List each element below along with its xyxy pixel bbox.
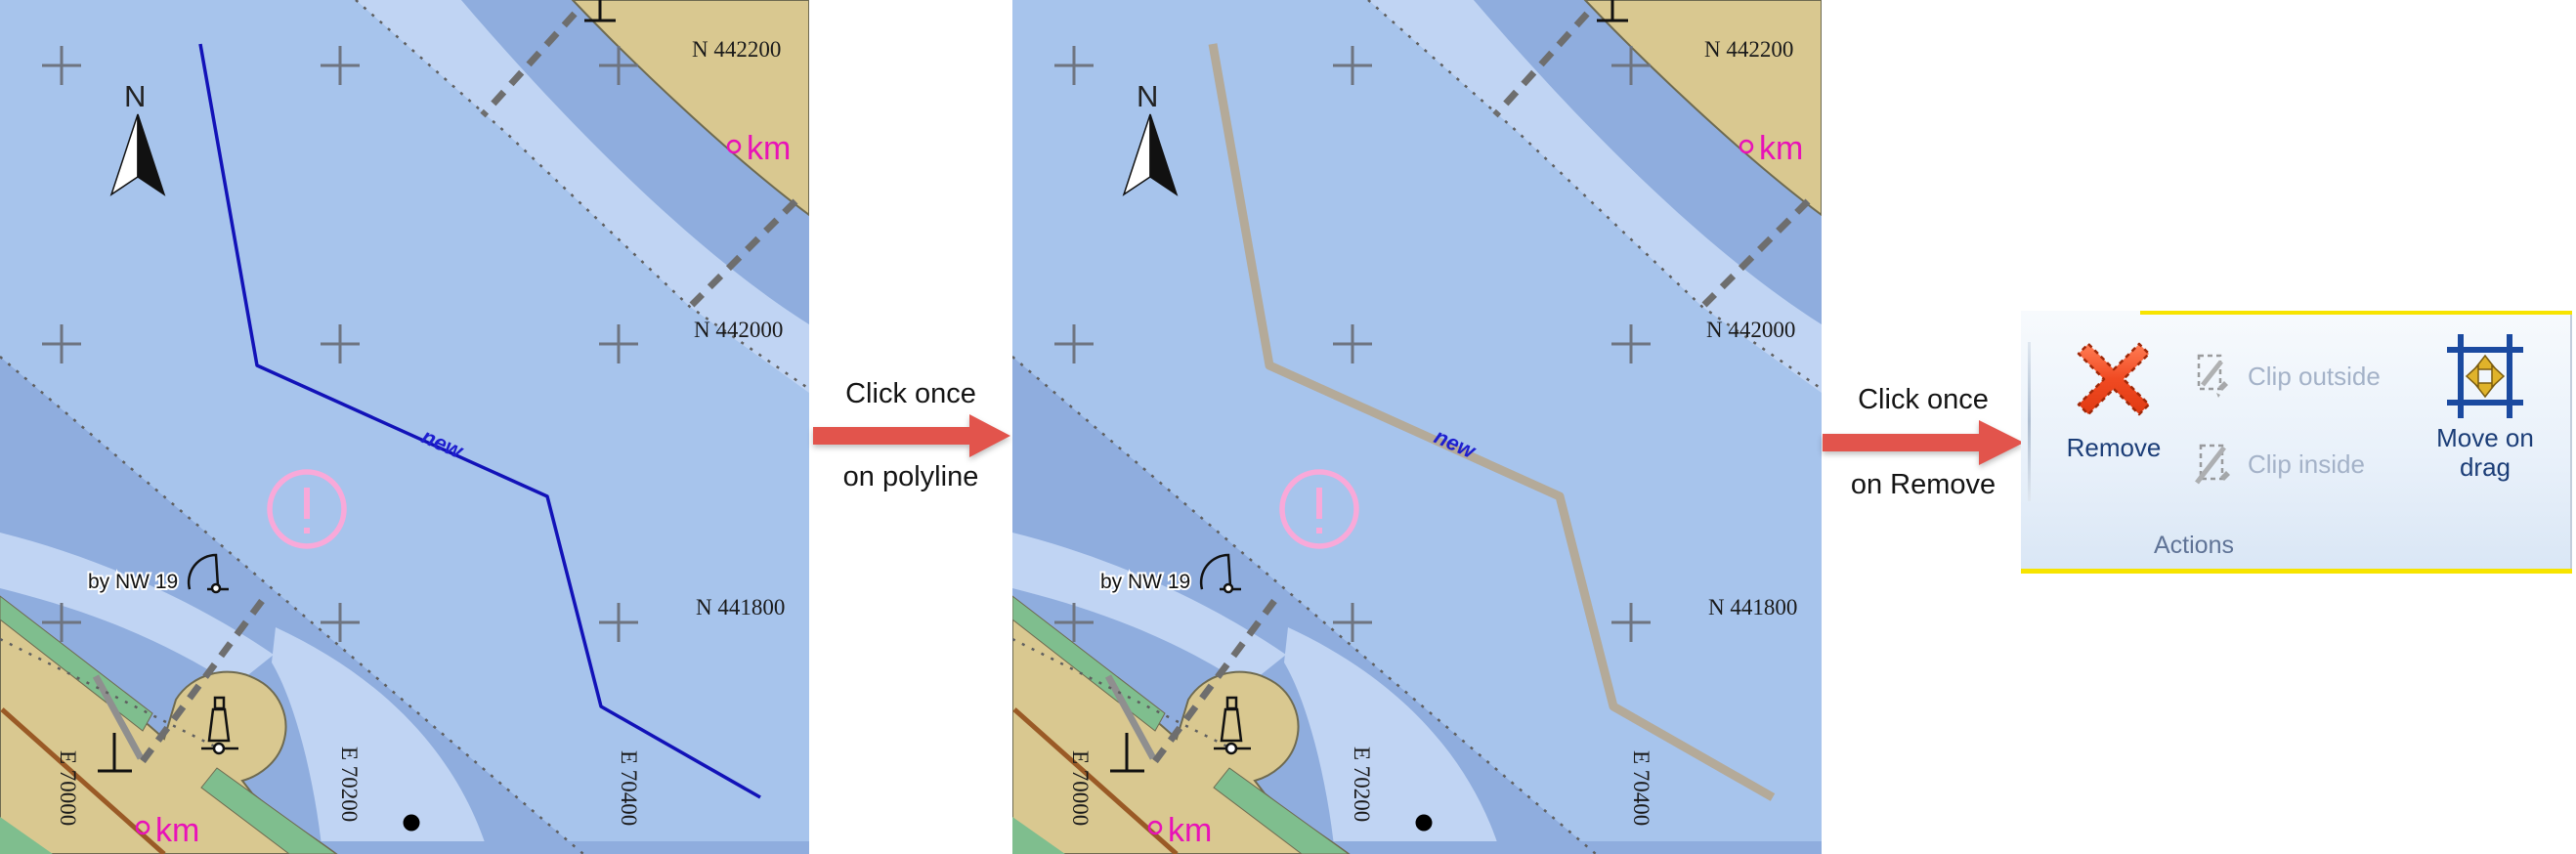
grid-label-n: N 441800 [696,595,785,619]
grid-label-n: N 441800 [1708,595,1797,619]
move-on-drag-button-label: Move on drag [2426,423,2544,482]
svg-text:km: km [747,130,791,167]
sounding-dot [1416,815,1433,832]
grid-label-n: N 442000 [1706,318,1795,342]
grid-label-e: E 70200 [337,747,362,822]
tutorial-page: { "page": { "background": "#ffffff" }, "… [0,0,2576,854]
remove-button[interactable]: Remove [2050,336,2177,462]
annotation-text: Click once [1822,383,2025,416]
chart-view-after[interactable]: N 442200 N 442000 N 441800 E 70000 E 702… [1012,0,1822,854]
move-on-drag-icon [2447,332,2523,423]
clip-outside-button[interactable]: Clip outside [2195,352,2381,401]
clip-inside-button-label: Clip inside [2248,449,2365,479]
ribbon-highlight-border-top [2140,311,2572,315]
sounding-dot [404,815,420,832]
chart-view-before[interactable]: N 442200 N 442000 N 441800 E 70000 E 702… [0,0,809,854]
annotation-click-remove: Click once on Remove [1822,383,2025,501]
svg-text:N: N [124,79,146,113]
landmark-label: by NW 19 [88,571,178,593]
move-on-drag-button[interactable]: Move on drag [2422,332,2549,482]
ribbon-group-separator [2028,342,2031,501]
red-arrow-right-icon [1823,420,2024,465]
grid-label-e: E 70200 [1350,747,1374,822]
actions-ribbon-group: Remove Clip outside Clip inside [2021,311,2572,574]
annotation-click-polyline: Click once on polyline [809,377,1012,493]
grid-label-e: E 70400 [1629,750,1653,826]
grid-label-n: N 442000 [694,318,783,342]
grid-label-e: E 70000 [56,750,80,826]
annotation-text: Click once [809,377,1012,410]
svg-text:km: km [1168,812,1212,849]
red-arrow-right-icon [811,414,1010,457]
clip-outside-icon [2195,352,2234,402]
landmark-label: by NW 19 [1100,571,1190,593]
remove-button-label: Remove [2067,433,2162,462]
remove-x-icon [2075,336,2153,421]
svg-text:N: N [1137,79,1158,113]
annotation-text: on Remove [1822,468,2025,501]
svg-text:km: km [1759,130,1803,167]
grid-label-e: E 70400 [617,750,641,826]
ribbon-group-label: Actions [2021,532,2367,560]
grid-label-n: N 442200 [1704,37,1793,62]
grid-label-n: N 442200 [692,37,781,62]
clip-inside-icon [2195,440,2234,490]
clip-inside-button[interactable]: Clip inside [2195,440,2365,489]
ribbon-highlight-border-bottom [2021,569,2572,574]
grid-label-e: E 70000 [1068,750,1093,826]
annotation-text: on polyline [809,460,1012,493]
clip-outside-button-label: Clip outside [2248,362,2381,391]
svg-text:km: km [155,812,199,849]
